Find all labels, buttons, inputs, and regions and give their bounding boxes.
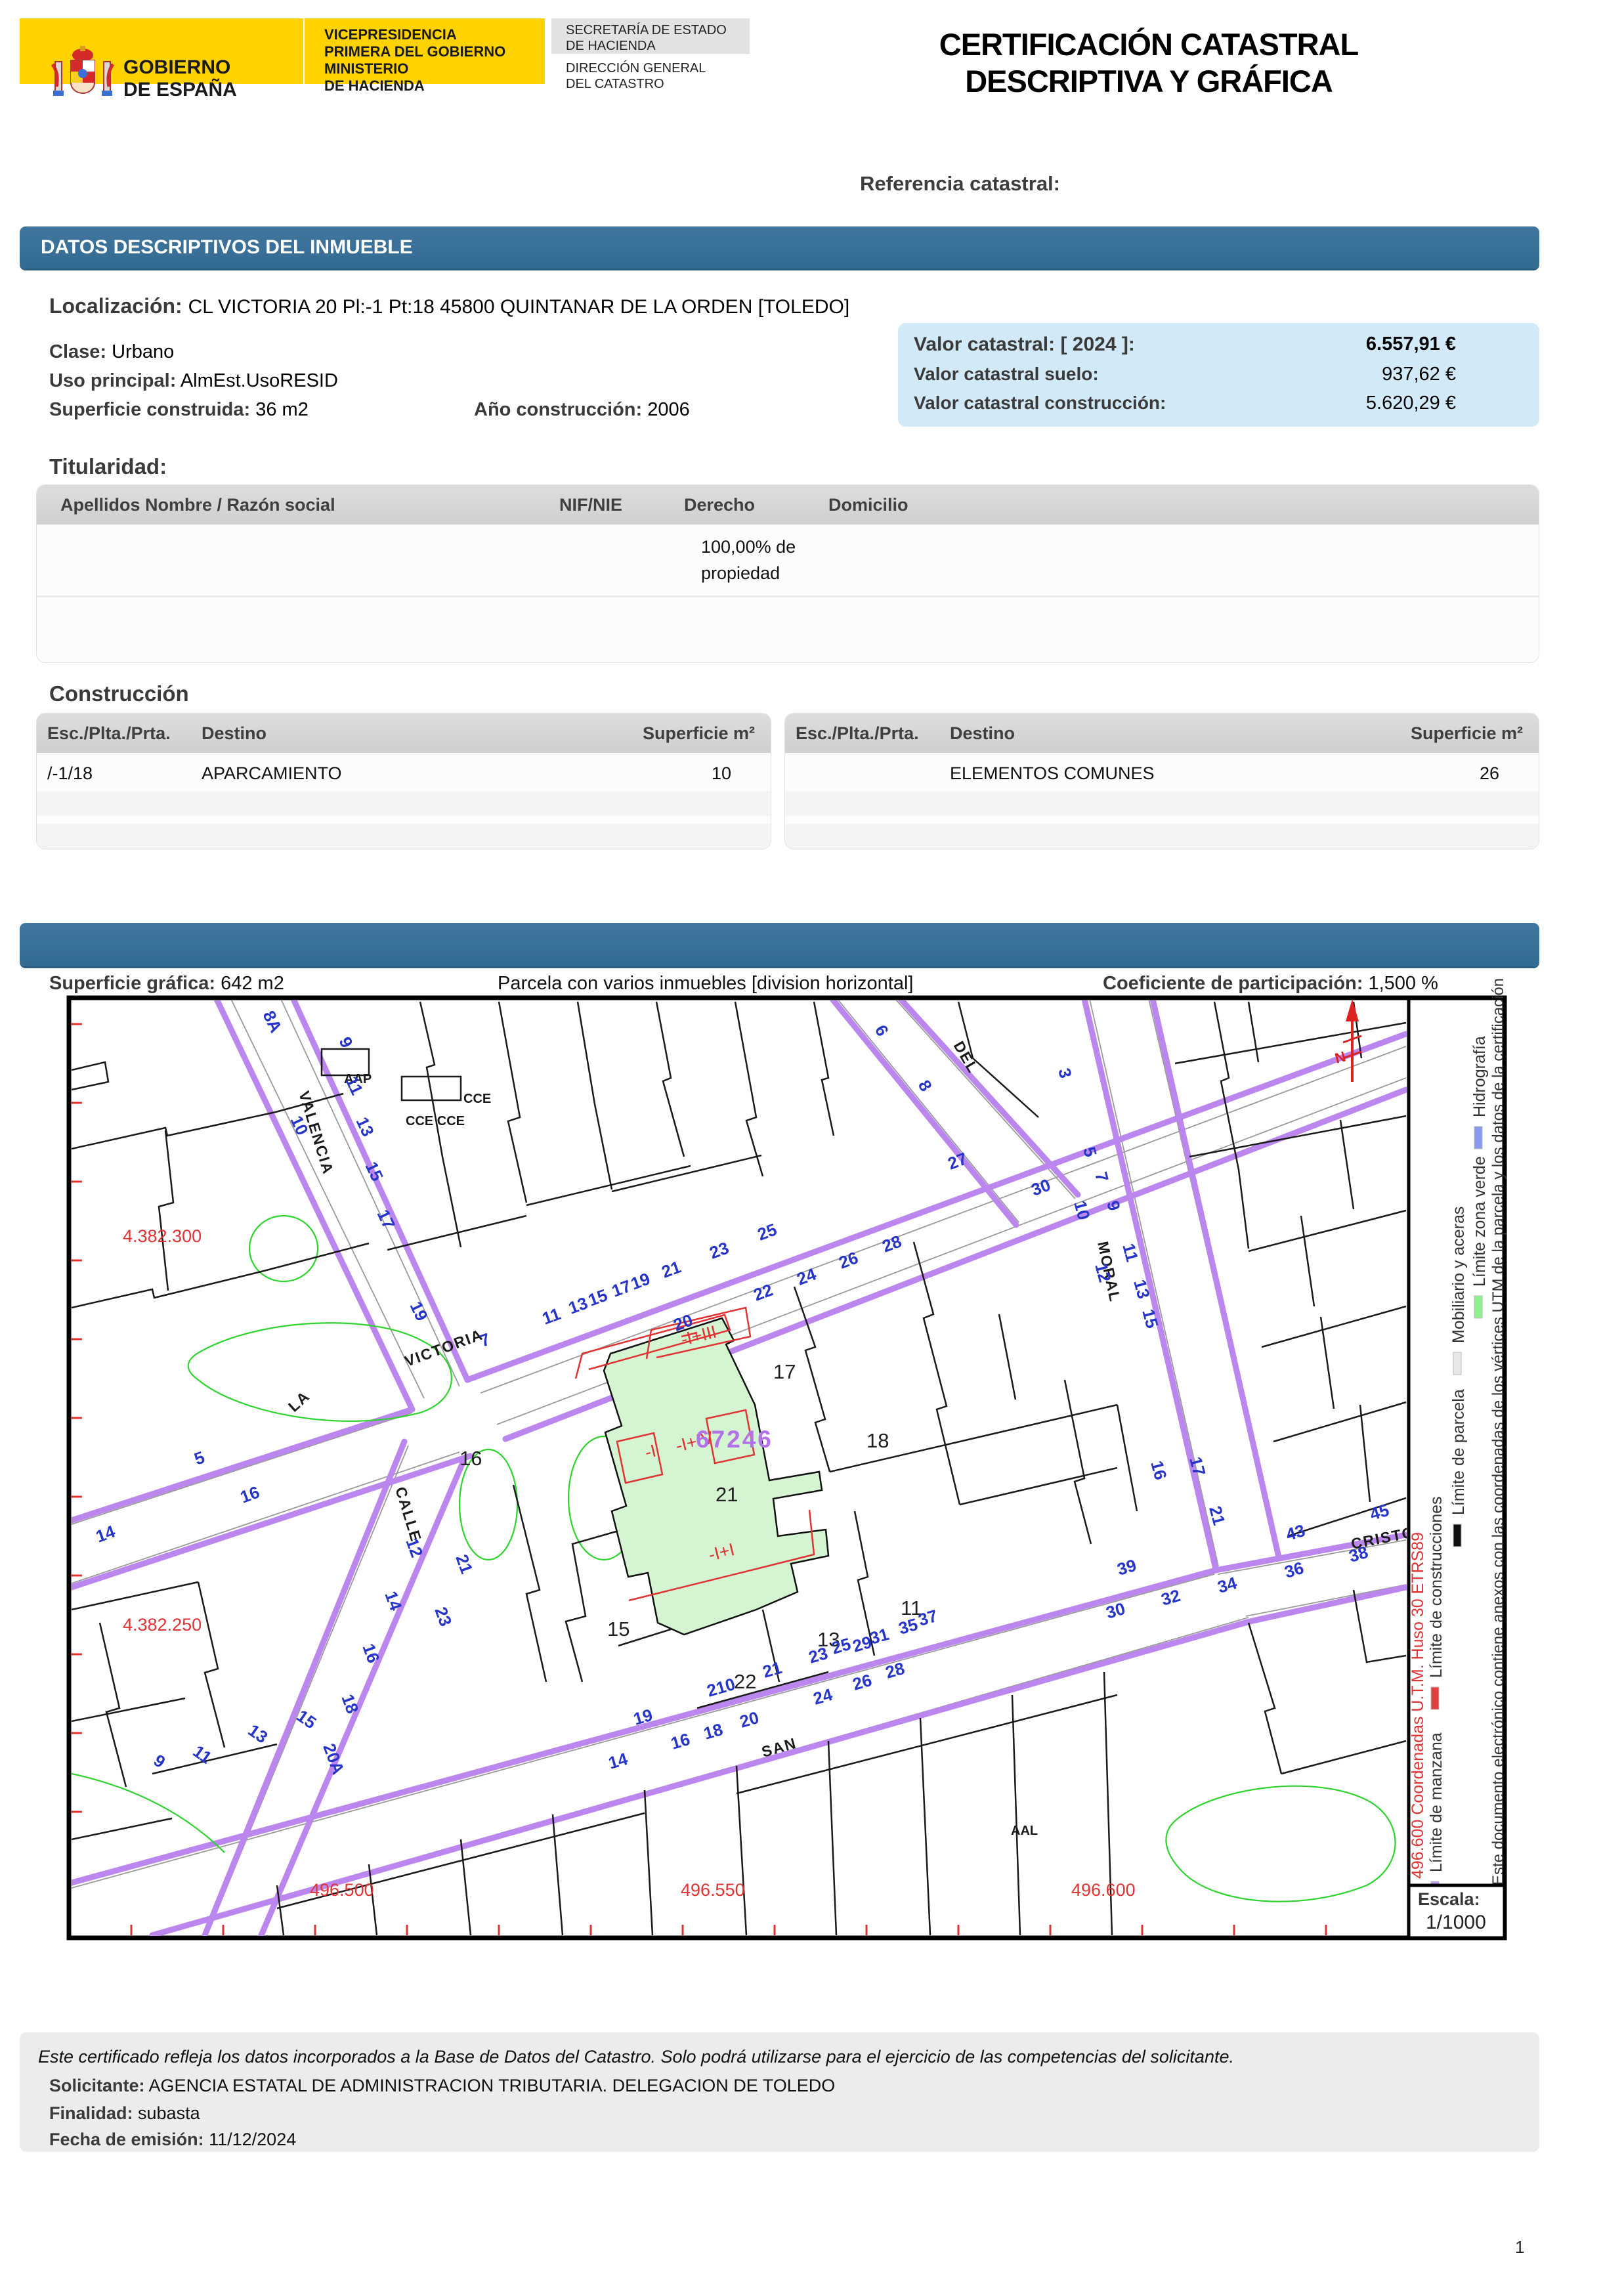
legend-swatch bbox=[1453, 1352, 1461, 1375]
map-label: 17 bbox=[773, 1360, 796, 1383]
map-label: 496.500 bbox=[310, 1880, 374, 1900]
footer-disclaimer: Este certificado refleja los datos incor… bbox=[38, 2047, 1234, 2067]
map-label: 67246 bbox=[696, 1426, 773, 1453]
annex-note: Este documento electrónico contiene anex… bbox=[1489, 978, 1507, 1885]
legend-swatch bbox=[1453, 1524, 1461, 1547]
page-number: 1 bbox=[1515, 2237, 1524, 2258]
map-label: AAL bbox=[1011, 1824, 1038, 1838]
map-label: CCE CCE bbox=[406, 1114, 465, 1128]
footer-certificate-box: Este certificado refleja los datos incor… bbox=[20, 2032, 1539, 2152]
map-label: 496.550 bbox=[681, 1880, 745, 1900]
fecha-value: 11/12/2024 bbox=[209, 2130, 296, 2149]
legend-label: Límite de construcciones bbox=[1427, 1496, 1445, 1678]
cadastral-map: N VALENCIAVICTORIALACALLEDELMORALSANCRIS… bbox=[0, 0, 1624, 2293]
legend-label: Límite de manzana bbox=[1427, 1732, 1445, 1872]
fecha-emision-row: Fecha de emisión: 11/12/2024 bbox=[49, 2130, 296, 2150]
legend-label: Hidrografía bbox=[1470, 1036, 1489, 1117]
finalidad-row: Finalidad: subasta bbox=[49, 2103, 200, 2124]
legend-swatch bbox=[1474, 1296, 1482, 1318]
legend-swatch bbox=[1431, 1687, 1439, 1709]
solicitante-label: Solicitante: bbox=[49, 2076, 145, 2095]
fecha-label: Fecha de emisión: bbox=[49, 2130, 204, 2149]
finalidad-label: Finalidad: bbox=[49, 2103, 133, 2123]
map-label: 496.600 bbox=[1071, 1880, 1136, 1900]
map-label: 16 bbox=[459, 1447, 482, 1470]
map-label: 15 bbox=[607, 1618, 630, 1640]
map-label: 18 bbox=[866, 1429, 889, 1452]
scale-label: Escala: bbox=[1418, 1889, 1480, 1909]
legend-swatch bbox=[1474, 1126, 1482, 1149]
map-label: 4.382.300 bbox=[123, 1226, 202, 1246]
legend-label: Límite de parcela bbox=[1449, 1389, 1468, 1515]
solicitante-value: AGENCIA ESTATAL DE ADMINISTRACION TRIBUT… bbox=[149, 2076, 836, 2095]
utm-coords-note: 496.600 Coordenadas U.T.M. Huso 30 ETRS8… bbox=[1409, 1532, 1427, 1879]
solicitante-row: Solicitante: AGENCIA ESTATAL DE ADMINIST… bbox=[49, 2076, 835, 2096]
map-label: CCE bbox=[463, 1092, 491, 1106]
map-label: 22 bbox=[734, 1670, 756, 1693]
map-label: 21 bbox=[716, 1483, 738, 1506]
legend-label: Mobiliario y aceras bbox=[1449, 1207, 1468, 1343]
finalidad-value: subasta bbox=[138, 2103, 200, 2123]
legend-label: Límite zona verde bbox=[1470, 1156, 1489, 1287]
map-label: 4.382.250 bbox=[123, 1615, 202, 1635]
scale-value: 1/1000 bbox=[1426, 1912, 1486, 1933]
